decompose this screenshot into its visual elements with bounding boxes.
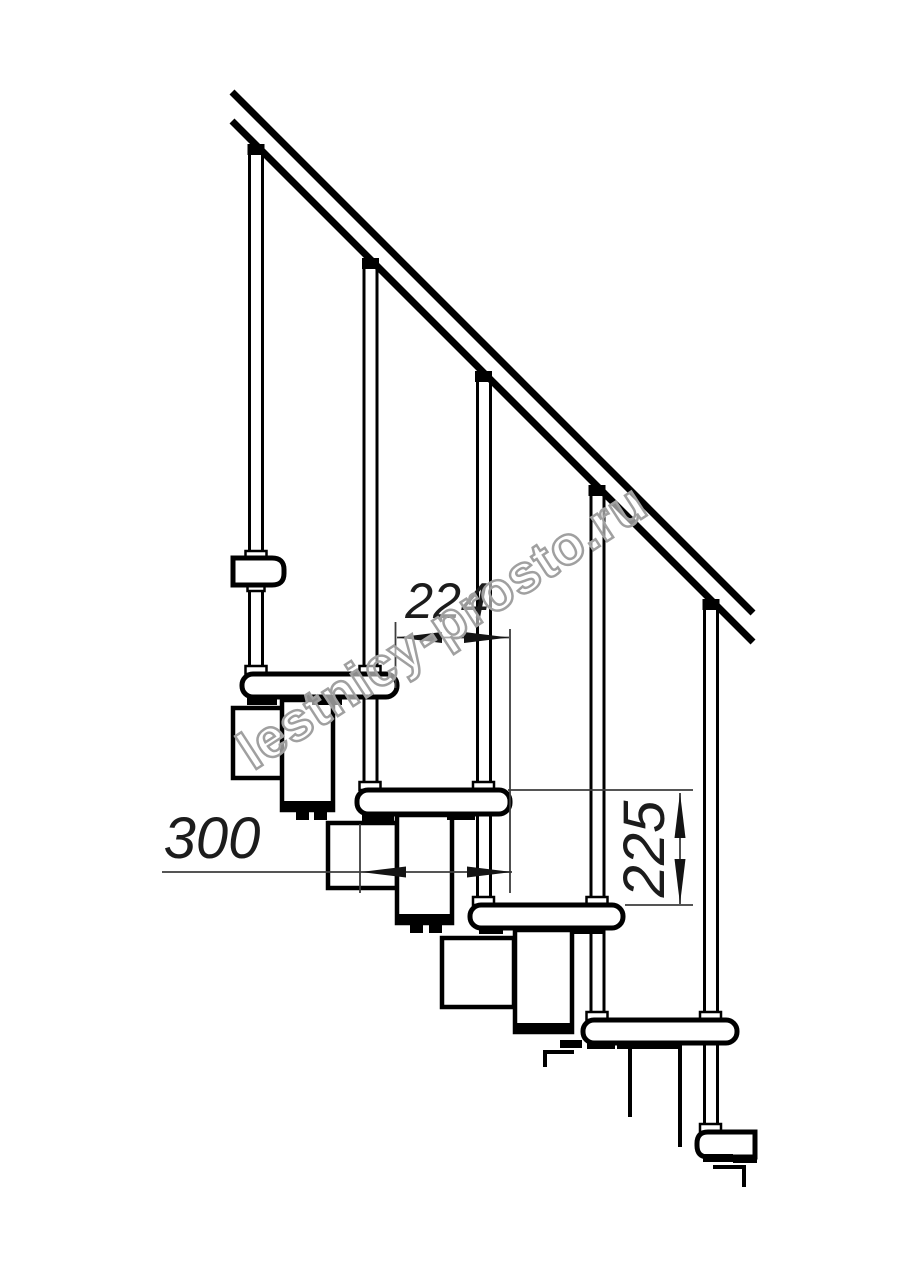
baluster-3: [473, 379, 494, 905]
module-foot: [410, 925, 423, 933]
tread-foot: [587, 1042, 615, 1049]
tread-foot: [362, 813, 394, 821]
staircase-elevation-drawing: 224 300 225 lestnicy-prosto.ru: [0, 0, 914, 1280]
tread-3: [470, 905, 623, 928]
module-box-h3: [442, 938, 514, 1007]
module-box-v3: [515, 930, 572, 1032]
module-foot: [296, 812, 309, 820]
tread-foot: [573, 927, 603, 934]
module-connector-2: [398, 914, 451, 923]
tread-foot: [479, 927, 503, 934]
baluster-1: [246, 152, 267, 674]
tread-upper-fragment: [233, 558, 284, 585]
tread-2: [357, 790, 510, 814]
module-foot: [429, 925, 442, 933]
tread-lower-fragment: [697, 1132, 755, 1157]
module-foot: [560, 1040, 582, 1048]
tread-foot: [703, 1154, 733, 1162]
dimension-label-tread-depth: 300: [164, 806, 261, 871]
module-connector-3: [516, 1023, 571, 1032]
module-foot: [314, 812, 327, 820]
module-box-h2: [328, 823, 397, 888]
baluster-5: [700, 606, 721, 1132]
handrail-top-line: [232, 92, 753, 613]
tread-foot: [447, 813, 475, 820]
tread-4: [583, 1020, 737, 1043]
module-connector-1: [283, 801, 332, 810]
dimension-label-rise: 225: [612, 800, 677, 899]
tread-foot: [733, 1157, 757, 1163]
tread-foot: [617, 1043, 680, 1049]
baluster-4: [587, 492, 608, 1020]
